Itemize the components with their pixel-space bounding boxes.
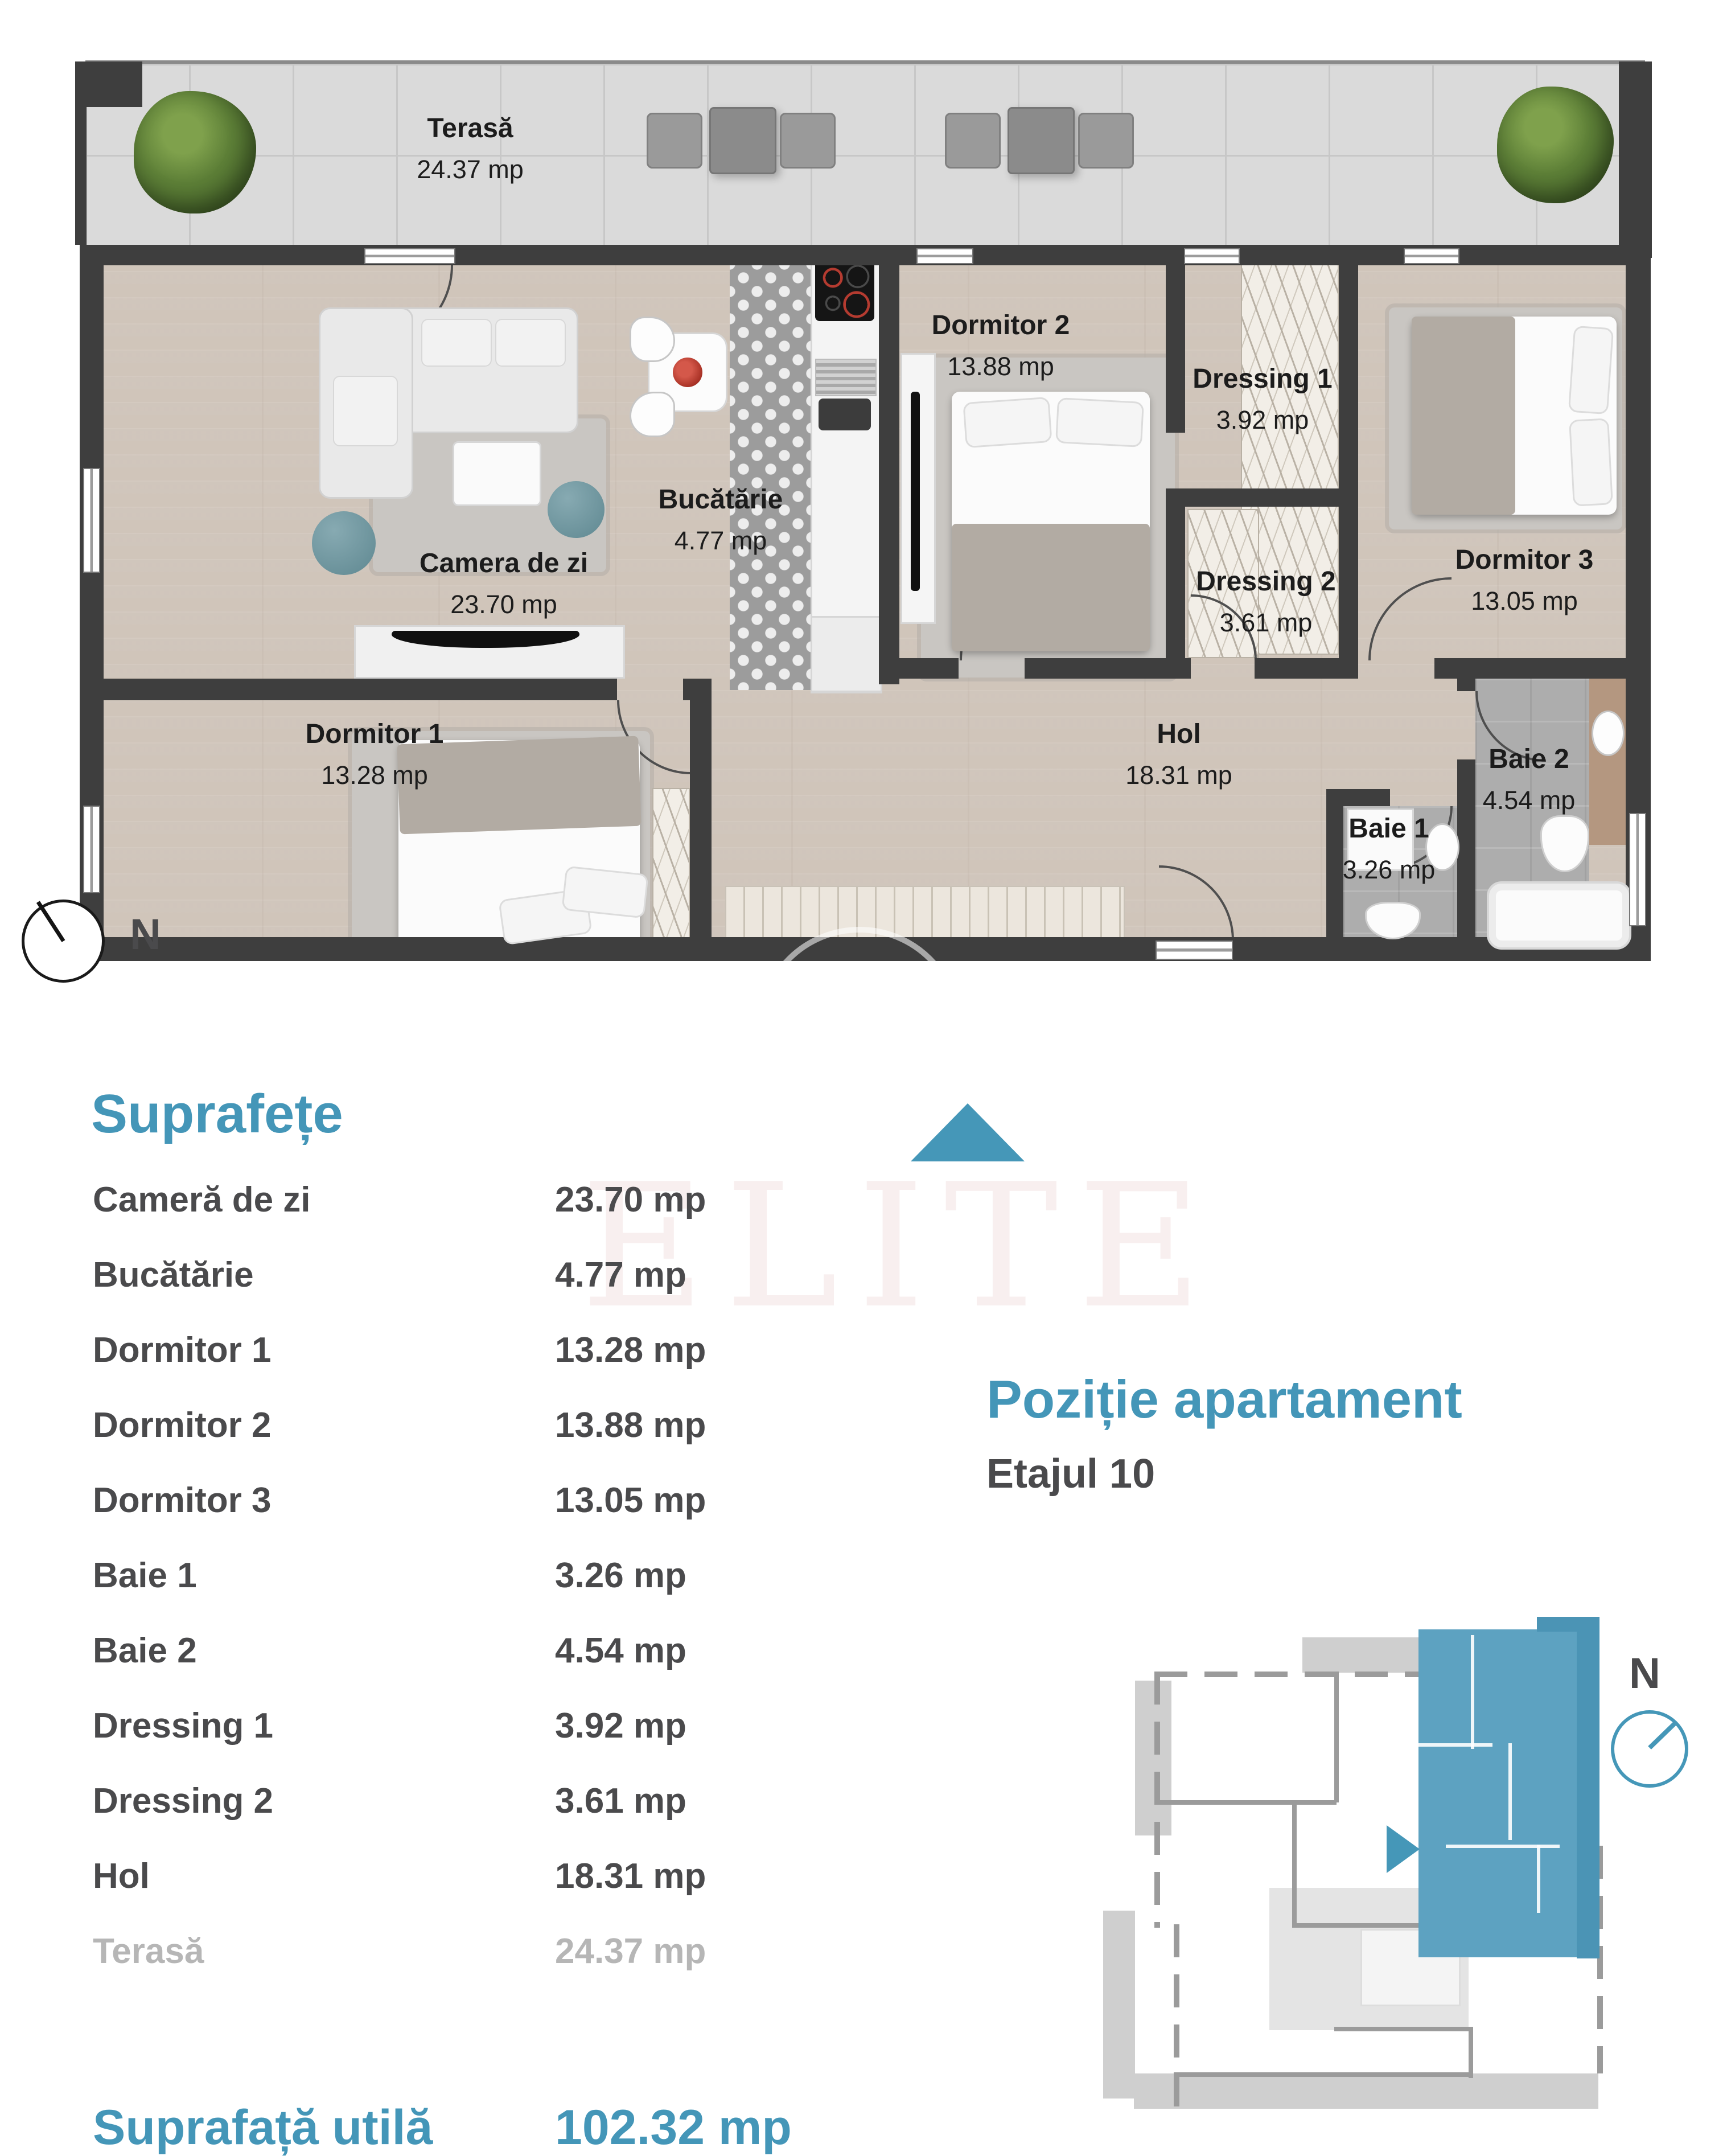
apartment-inner-wall bbox=[1418, 1743, 1492, 1747]
terrace-chair bbox=[780, 113, 836, 169]
area-row: Dressing 1 3.92 mp bbox=[93, 1706, 706, 1781]
apartment-inner-wall bbox=[1446, 1845, 1560, 1848]
area-row: Cameră de zi 23.70 mp bbox=[93, 1180, 706, 1255]
area-row-label: Terasă bbox=[93, 1931, 555, 1972]
bed-blanket bbox=[1412, 317, 1515, 515]
area-row-value: 13.28 mp bbox=[555, 1330, 706, 1370]
room-name: Dressing 1 bbox=[1154, 363, 1371, 395]
room-label-living: Camera de zi 23.70 mp bbox=[396, 548, 612, 619]
area-row-label: Dressing 2 bbox=[93, 1781, 555, 1821]
area-row: Dressing 2 3.61 mp bbox=[93, 1781, 706, 1856]
areas-title: Suprafețe bbox=[91, 1083, 343, 1145]
building-wall bbox=[1292, 1923, 1434, 1928]
bedroom1-window bbox=[83, 806, 100, 893]
building-block bbox=[1135, 1681, 1171, 1835]
room-area: 3.26 mp bbox=[1281, 856, 1497, 884]
area-row-label: Cameră de zi bbox=[93, 1180, 555, 1220]
living-window bbox=[83, 468, 100, 573]
north-label: N bbox=[130, 910, 161, 959]
room-area: 13.05 mp bbox=[1416, 587, 1633, 615]
area-row-value: 24.37 mp bbox=[555, 1931, 706, 1972]
kitchen-drainer bbox=[815, 359, 877, 396]
terrace-side-wall-left bbox=[75, 61, 87, 245]
building-wall bbox=[1154, 1672, 1160, 1928]
building-wall bbox=[1174, 2072, 1470, 2077]
room-label-bedroom3: Dormitor 3 13.05 mp bbox=[1416, 544, 1633, 615]
terrace-table bbox=[1008, 107, 1075, 174]
north-label: N bbox=[1629, 1649, 1660, 1698]
bed-pillow bbox=[1055, 397, 1144, 447]
building-block bbox=[1302, 1637, 1423, 1673]
room-area: 23.70 mp bbox=[396, 590, 612, 619]
area-row: Dormitor 3 13.05 mp bbox=[93, 1480, 706, 1555]
highlighted-apartment-notch bbox=[1537, 1617, 1599, 1632]
kitchen-lower-cabinet bbox=[811, 616, 882, 692]
area-row-label: Dormitor 3 bbox=[93, 1480, 555, 1521]
bed-pillow bbox=[1569, 418, 1613, 506]
apartment-inner-wall bbox=[1508, 1743, 1512, 1840]
bedroom1-wardrobe bbox=[652, 788, 690, 955]
position-title: Poziție apartament bbox=[986, 1369, 1462, 1430]
wall-dressing-divider bbox=[1166, 488, 1358, 507]
room-name: Terasă bbox=[362, 113, 578, 144]
apartment-floor-plan-page: { "floor_plan": { "compass_label": "N", … bbox=[0, 0, 1727, 2145]
building-wall bbox=[1154, 1800, 1337, 1805]
terrace-chair bbox=[945, 113, 1001, 169]
room-label-bedroom2: Dormitor 2 13.88 mp bbox=[893, 310, 1109, 381]
entry-door-opening bbox=[1156, 941, 1233, 960]
room-area: 4.54 mp bbox=[1421, 786, 1637, 815]
coffee-table bbox=[453, 441, 541, 506]
area-row-value: 13.05 mp bbox=[555, 1480, 706, 1521]
wall-living-bedroom1-a bbox=[80, 679, 617, 700]
bed-pillow bbox=[963, 397, 1052, 448]
building-wall bbox=[1334, 2027, 1471, 2031]
total-area-value: 102.32 mp bbox=[555, 2100, 792, 2156]
room-label-bath1: Baie 1 3.26 mp bbox=[1281, 813, 1497, 884]
terrace-tree-left bbox=[134, 91, 256, 213]
bathtub bbox=[1487, 881, 1631, 950]
highlighted-apartment-edge bbox=[1577, 1617, 1599, 1958]
bed-pillow bbox=[1568, 326, 1614, 415]
area-row-label: Hol bbox=[93, 1856, 555, 1896]
room-name: Bucătărie bbox=[612, 484, 829, 515]
bed-blanket bbox=[952, 524, 1150, 651]
bathroom2-window bbox=[1629, 813, 1646, 926]
kitchen-tile-floor bbox=[730, 250, 811, 690]
compass-icon bbox=[1611, 1710, 1688, 1788]
apartment-inner-wall bbox=[1471, 1635, 1474, 1749]
area-row: Dormitor 1 13.28 mp bbox=[93, 1330, 706, 1405]
room-name: Dormitor 3 bbox=[1416, 544, 1633, 576]
room-label-dressing2: Dressing 2 3.61 mp bbox=[1158, 566, 1374, 637]
room-area: 13.88 mp bbox=[893, 352, 1109, 381]
room-name: Dressing 2 bbox=[1158, 566, 1374, 597]
building-block bbox=[1103, 1911, 1135, 2098]
building-block bbox=[1134, 2073, 1598, 2109]
floor-label: Etajul 10 bbox=[986, 1451, 1155, 1497]
room-area: 3.92 mp bbox=[1154, 406, 1371, 434]
room-area: 4.77 mp bbox=[612, 527, 829, 555]
terrace-table bbox=[709, 107, 776, 174]
area-row-value: 4.77 mp bbox=[555, 1255, 686, 1295]
room-label-bedroom1: Dormitor 1 13.28 mp bbox=[266, 718, 483, 790]
flowers-icon bbox=[673, 358, 702, 387]
terrace-chair bbox=[647, 113, 702, 169]
sofa-cushion bbox=[333, 376, 398, 446]
room-name: Camera de zi bbox=[396, 548, 612, 579]
area-row-value: 4.54 mp bbox=[555, 1631, 686, 1671]
highlighted-apartment bbox=[1418, 1629, 1577, 1957]
room-area: 18.31 mp bbox=[1071, 761, 1287, 790]
area-row-value: 3.61 mp bbox=[555, 1781, 686, 1821]
room-name: Baie 2 bbox=[1421, 744, 1637, 775]
sofa-cushion bbox=[421, 319, 492, 367]
building-wall bbox=[1292, 1800, 1297, 1927]
area-row-label: Baie 1 bbox=[93, 1555, 555, 1596]
dining-chair bbox=[630, 392, 675, 437]
area-row-value: 18.31 mp bbox=[555, 1856, 706, 1896]
area-row: Hol 18.31 mp bbox=[93, 1856, 706, 1931]
kitchen-sink bbox=[819, 399, 871, 430]
room-label-dressing1: Dressing 1 3.92 mp bbox=[1154, 363, 1371, 434]
total-area-label: Suprafață utilă bbox=[93, 2100, 433, 2156]
logo-ring-icon bbox=[757, 927, 962, 1132]
room-label-bath2: Baie 2 4.54 mp bbox=[1421, 744, 1637, 815]
area-row-label: Baie 2 bbox=[93, 1631, 555, 1671]
bed-pillow bbox=[561, 866, 648, 919]
tv-icon bbox=[911, 392, 920, 591]
building-wall bbox=[1469, 2027, 1473, 2078]
wall-south-bedroom2-a bbox=[879, 658, 959, 679]
area-row-label: Dressing 1 bbox=[93, 1706, 555, 1746]
area-row-label: Bucătărie bbox=[93, 1255, 555, 1295]
room-name: Baie 1 bbox=[1281, 813, 1497, 844]
terrace-door-window bbox=[916, 248, 973, 264]
area-row: Baie 1 3.26 mp bbox=[93, 1555, 706, 1631]
wall-bath2-left-a bbox=[1457, 658, 1475, 691]
area-row-label: Dormitor 1 bbox=[93, 1330, 555, 1370]
apartment-inner-wall bbox=[1537, 1845, 1540, 1913]
logo-triangle-icon bbox=[911, 1103, 1025, 1161]
sofa-cushion bbox=[495, 319, 566, 367]
room-label-terrace: Terasă 24.37 mp bbox=[362, 113, 578, 184]
building-wall bbox=[1334, 1672, 1339, 1802]
room-name: Hol bbox=[1071, 718, 1287, 750]
room-label-kitchen: Bucătărie 4.77 mp bbox=[612, 484, 829, 555]
area-row-value: 13.88 mp bbox=[555, 1405, 706, 1445]
terrace-door-window bbox=[1404, 248, 1459, 264]
cooktop-icon bbox=[815, 257, 874, 321]
room-label-hall: Hol 18.31 mp bbox=[1071, 718, 1287, 790]
room-name: Dormitor 2 bbox=[893, 310, 1109, 341]
wall-bedroom1-right bbox=[690, 679, 712, 961]
terrace-edge bbox=[85, 60, 1645, 64]
wall-top bbox=[85, 245, 1628, 265]
terrace-door-window bbox=[1184, 248, 1240, 264]
terrace-tree-right bbox=[1497, 87, 1614, 203]
building-wall bbox=[1174, 1924, 1179, 2106]
area-row-value: 3.26 mp bbox=[555, 1555, 686, 1596]
wall-south-bedroom2-b bbox=[1025, 658, 1191, 679]
area-row-value: 3.92 mp bbox=[555, 1706, 686, 1746]
room-name: Dormitor 1 bbox=[266, 718, 483, 750]
pouf bbox=[548, 481, 605, 538]
terrace-door-window bbox=[364, 248, 455, 264]
room-area: 3.61 mp bbox=[1158, 609, 1374, 637]
pouf bbox=[312, 511, 376, 575]
area-row-label: Dormitor 2 bbox=[93, 1405, 555, 1445]
room-area: 24.37 mp bbox=[362, 155, 578, 184]
terrace-chair bbox=[1078, 113, 1134, 169]
dining-chair bbox=[630, 317, 675, 362]
area-row: Bucătărie 4.77 mp bbox=[93, 1255, 706, 1330]
apartment-arrow-icon bbox=[1387, 1825, 1420, 1873]
room-area: 13.28 mp bbox=[266, 761, 483, 790]
hall-wardrobe bbox=[725, 886, 1125, 938]
wall-south-dressing bbox=[1255, 658, 1357, 679]
terrace-corner-wall-right bbox=[1619, 61, 1652, 258]
area-row-value: 23.70 mp bbox=[555, 1180, 706, 1220]
area-row: Baie 2 4.54 mp bbox=[93, 1631, 706, 1706]
areas-list: Cameră de zi 23.70 mp Bucătărie 4.77 mp … bbox=[93, 1180, 706, 2006]
wall-bath1-top bbox=[1326, 789, 1390, 806]
area-row-terrace: Terasă 24.37 mp bbox=[93, 1931, 706, 2006]
terrace-floor bbox=[85, 64, 1645, 245]
area-row: Dormitor 2 13.88 mp bbox=[93, 1405, 706, 1480]
